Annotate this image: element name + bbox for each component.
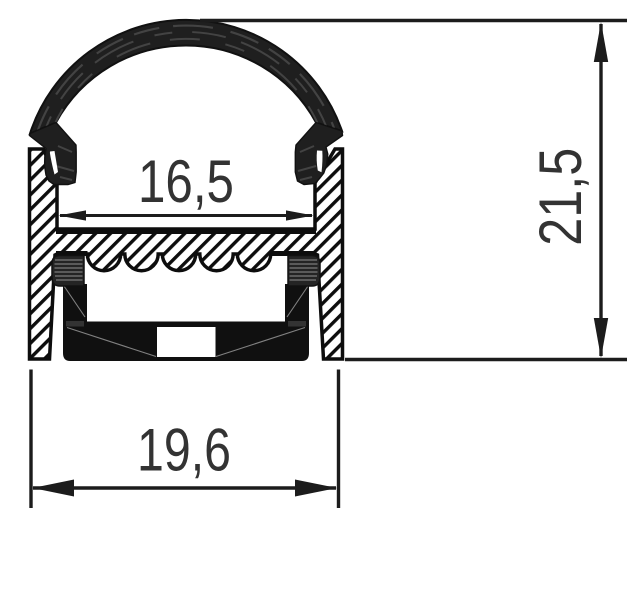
svg-text:21,5: 21,5 [526, 148, 594, 246]
svg-text:19,6: 19,6 [137, 416, 231, 484]
svg-text:16,5: 16,5 [138, 147, 234, 215]
